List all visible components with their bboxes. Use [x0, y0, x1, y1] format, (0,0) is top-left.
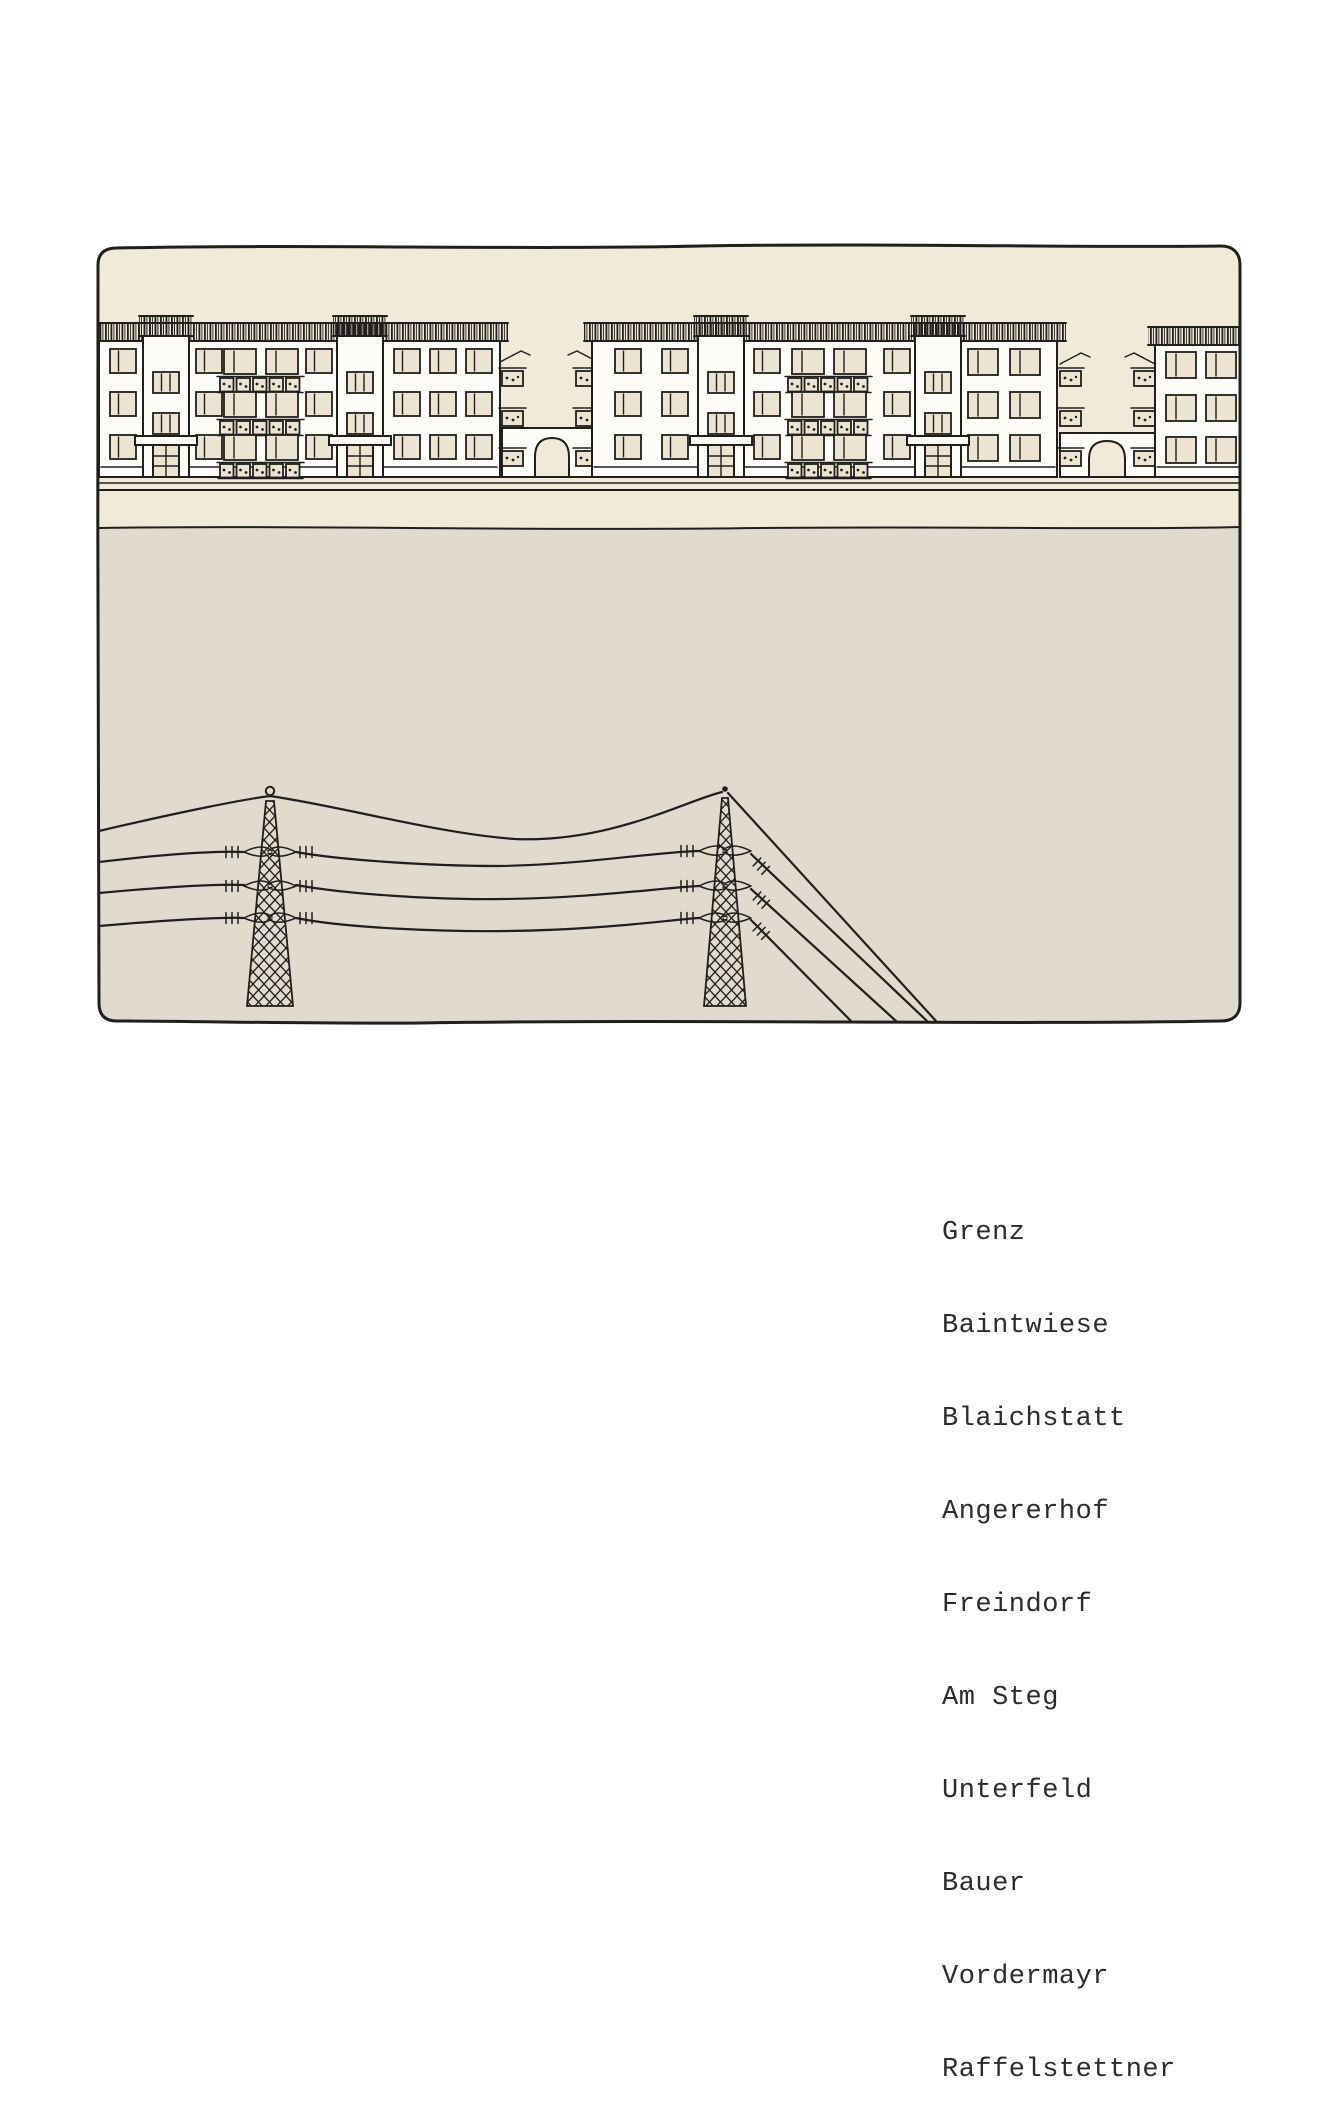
building-block-3 [1148, 327, 1245, 477]
illustration-panel [0, 0, 1334, 1060]
pylon-top-ball [722, 786, 728, 792]
caption-line: Baintwiese [942, 1311, 1176, 1342]
caption-line: Am Steg [942, 1683, 1176, 1714]
caption-line: Blaichstatt [942, 1404, 1176, 1435]
building-block-2 [584, 316, 1066, 479]
stairwell-entrance [329, 316, 391, 477]
caption-list: Grenz Baintwiese Blaichstatt Angererhof … [942, 1156, 1176, 2117]
stairwell-entrance [135, 316, 197, 477]
stairwell-entrance [690, 316, 752, 477]
caption-line: Bauer [942, 1869, 1176, 1900]
building-block-1 [99, 316, 508, 479]
caption-line: Freindorf [942, 1590, 1176, 1621]
caption-line: Unterfeld [942, 1776, 1176, 1807]
caption-line: Grenz [942, 1218, 1176, 1249]
caption-line: Raffelstettner [942, 2055, 1176, 2086]
caption-line: Angererhof [942, 1497, 1176, 1528]
caption-line: Vordermayr [942, 1962, 1176, 1993]
book-page: { "caption": { "names": [ "Grenz", "Bain… [0, 0, 1334, 1600]
stairwell-entrance [907, 316, 969, 477]
